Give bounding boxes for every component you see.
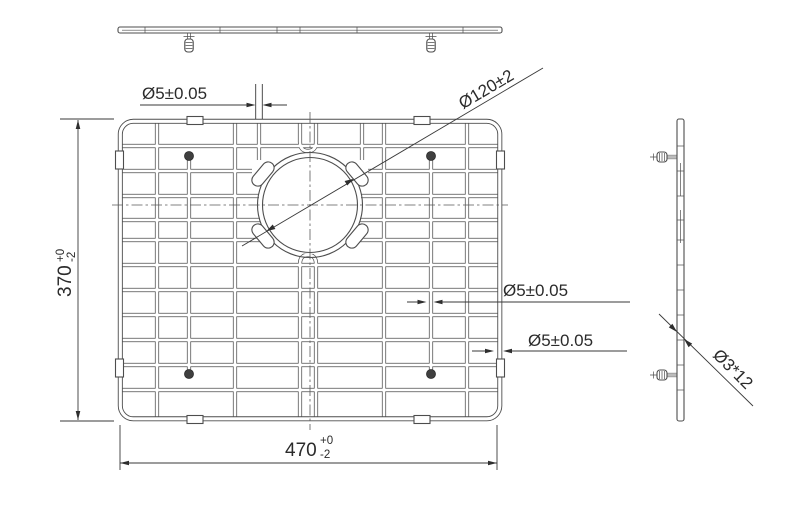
callout-wire-diameter-top: Ø5±0.05 bbox=[140, 84, 287, 119]
foot-front-right bbox=[426, 33, 437, 52]
width-tol-upper: +0 bbox=[320, 435, 333, 447]
plan-view bbox=[112, 112, 508, 430]
side-wire-ticks bbox=[677, 146, 684, 390]
dimension-grid-width: 470 +0 -2 bbox=[120, 425, 497, 470]
depth-value: 370 bbox=[55, 265, 76, 297]
wire-dia-top-label: Ø5±0.05 bbox=[142, 84, 207, 103]
foot-side-bottom bbox=[650, 370, 677, 380]
foot-side-top bbox=[650, 152, 677, 162]
side-profile-view: Ø3*12 bbox=[650, 119, 757, 421]
foot-front-left bbox=[184, 33, 195, 52]
technical-drawing: 370 +0 -2 470 +0 -2 Ø5±0.05 Ø120±2 Ø5±0.… bbox=[0, 0, 800, 516]
callout-frame-wire-diameter: Ø5±0.05 bbox=[472, 331, 627, 353]
centerlines bbox=[112, 112, 508, 430]
callout-foot-size: Ø3*12 bbox=[659, 314, 757, 406]
width-tol-lower: -2 bbox=[320, 449, 330, 461]
depth-tol-lower: -2 bbox=[66, 252, 78, 262]
width-value: 470 bbox=[285, 440, 317, 461]
top-profile-view bbox=[118, 27, 502, 52]
wire-dia-right-label: Ø5±0.05 bbox=[503, 281, 568, 300]
drawing-sheet: 370 +0 -2 470 +0 -2 Ø5±0.05 Ø120±2 Ø5±0.… bbox=[0, 0, 800, 516]
callout-wire-diameter-right: Ø5±0.05 bbox=[407, 281, 630, 304]
frame-wire-dia-label: Ø5±0.05 bbox=[528, 331, 593, 350]
dimension-grid-depth: 370 +0 -2 bbox=[55, 119, 114, 421]
